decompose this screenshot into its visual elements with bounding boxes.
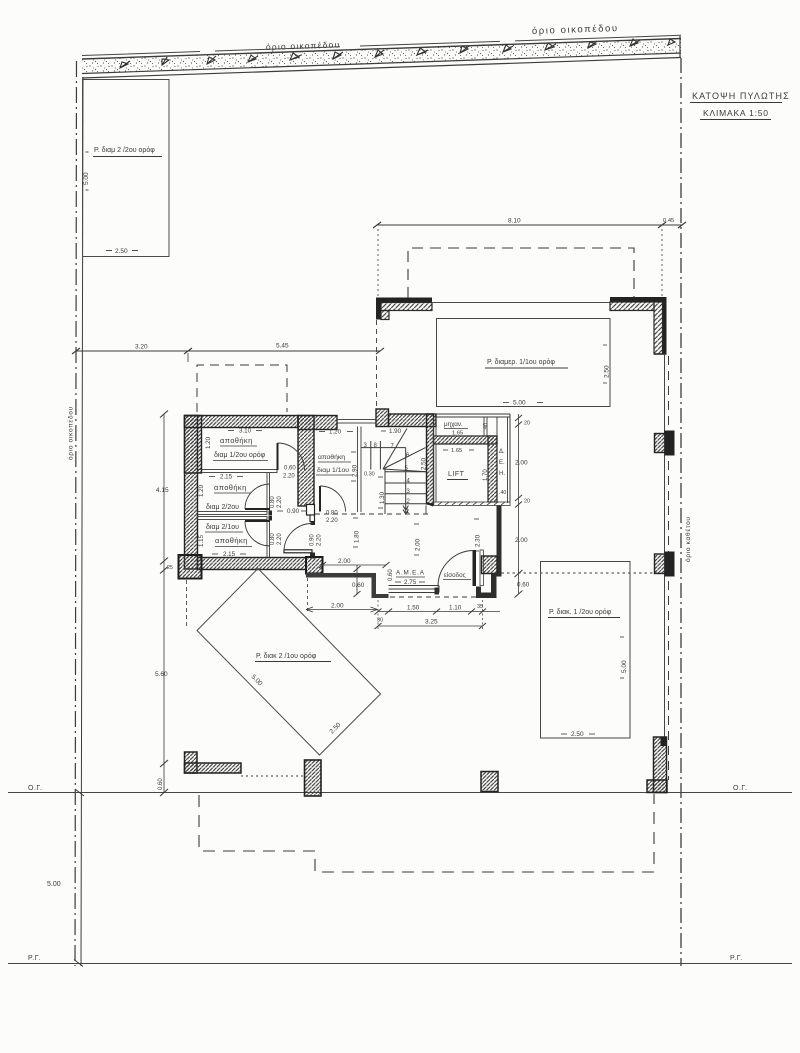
svg-text:αποθήκη: αποθήκη bbox=[318, 454, 345, 461]
svg-text:.40: .40 bbox=[499, 490, 506, 496]
svg-text:5.45: 5.45 bbox=[276, 343, 289, 350]
svg-text:0.60: 0.60 bbox=[158, 778, 164, 790]
svg-text:όριο οικοπέδου: όριο οικοπέδου bbox=[67, 406, 75, 460]
svg-text:0.60: 0.60 bbox=[388, 569, 394, 581]
svg-text:ΚΑΤΟΨΗ ΠΥΛΩΤΗΣ: ΚΑΤΟΨΗ ΠΥΛΩΤΗΣ bbox=[692, 91, 790, 101]
svg-text:20: 20 bbox=[524, 499, 530, 505]
svg-text:Ρ. διαμ 2 /2ου ορόφ: Ρ. διαμ 2 /2ου ορόφ bbox=[94, 146, 155, 154]
svg-text:1.10: 1.10 bbox=[449, 605, 462, 612]
svg-text:Α.Μ.Ε.Α: Α.Μ.Ε.Α bbox=[396, 570, 425, 577]
svg-text:2.00: 2.00 bbox=[415, 538, 422, 551]
svg-text:5.00: 5.00 bbox=[621, 660, 628, 673]
svg-text:διαμ 1/2ου ορόφ: διαμ 1/2ου ορόφ bbox=[214, 451, 266, 459]
svg-text:2.00: 2.00 bbox=[338, 558, 351, 565]
svg-text:0.90: 0.90 bbox=[287, 508, 300, 515]
svg-text:είσοδος: είσοδος bbox=[444, 571, 466, 579]
svg-text:2.50: 2.50 bbox=[604, 365, 611, 378]
svg-text:2.20: 2.20 bbox=[317, 534, 323, 546]
svg-text:5.00: 5.00 bbox=[513, 400, 526, 407]
svg-text:2.00: 2.00 bbox=[515, 460, 528, 467]
svg-text:5.00: 5.00 bbox=[83, 172, 90, 185]
svg-text:8.10: 8.10 bbox=[508, 218, 521, 225]
svg-text:αποθήκη: αποθήκη bbox=[214, 483, 247, 492]
svg-text:Ο.Γ.: Ο.Γ. bbox=[28, 785, 42, 792]
svg-text:Ο.Γ.: Ο.Γ. bbox=[733, 785, 747, 792]
svg-text:0.80: 0.80 bbox=[270, 496, 276, 508]
svg-text:μηχαν.: μηχαν. bbox=[444, 421, 463, 428]
svg-text:2.00: 2.00 bbox=[331, 603, 344, 610]
svg-text:Ρ.Γ.: Ρ.Γ. bbox=[28, 955, 41, 962]
svg-text:0.30: 0.30 bbox=[364, 472, 375, 478]
svg-text:2.75: 2.75 bbox=[404, 579, 417, 586]
svg-text:.40: .40 bbox=[483, 423, 489, 431]
svg-text:1.80: 1.80 bbox=[354, 530, 361, 543]
svg-text:Η.: Η. bbox=[499, 471, 505, 477]
svg-text:1.50: 1.50 bbox=[407, 605, 420, 612]
svg-text:0.60: 0.60 bbox=[352, 582, 365, 589]
svg-text:2.50: 2.50 bbox=[571, 731, 584, 738]
svg-text:Ε.: Ε. bbox=[499, 460, 505, 466]
svg-text:2.30: 2.30 bbox=[475, 534, 482, 547]
svg-text:διαμ 2/1ου: διαμ 2/1ου bbox=[206, 524, 239, 531]
svg-text:2.50: 2.50 bbox=[115, 248, 128, 255]
svg-text:ΚΛΙΜΑΚΑ 1:50: ΚΛΙΜΑΚΑ 1:50 bbox=[703, 108, 769, 118]
svg-text:2.20: 2.20 bbox=[277, 496, 283, 508]
svg-text:0.80: 0.80 bbox=[270, 533, 276, 545]
svg-text:25: 25 bbox=[167, 565, 173, 571]
svg-text:2.15: 2.15 bbox=[223, 551, 236, 558]
svg-text:3.10: 3.10 bbox=[239, 428, 252, 435]
svg-text:2.15: 2.15 bbox=[220, 474, 233, 481]
svg-text:1.90: 1.90 bbox=[389, 428, 402, 435]
svg-text:1.15: 1.15 bbox=[198, 534, 205, 547]
svg-text:1.65: 1.65 bbox=[451, 448, 462, 454]
svg-text:όριο καθέτου: όριο καθέτου bbox=[684, 516, 692, 562]
svg-text:20: 20 bbox=[524, 421, 530, 427]
svg-text:αποθήκη: αποθήκη bbox=[215, 536, 248, 545]
svg-text:αποθήκη: αποθήκη bbox=[220, 436, 253, 445]
svg-text:2.20: 2.20 bbox=[283, 474, 295, 480]
svg-text:2.50: 2.50 bbox=[421, 457, 428, 470]
svg-text:0.60: 0.60 bbox=[517, 582, 530, 589]
svg-text:1.20: 1.20 bbox=[198, 484, 205, 497]
svg-text:2.20: 2.20 bbox=[277, 533, 283, 545]
svg-text:2.20: 2.20 bbox=[326, 518, 338, 524]
svg-text:1.70: 1.70 bbox=[483, 469, 489, 481]
svg-text:1.30: 1.30 bbox=[379, 491, 386, 504]
svg-text:3.25: 3.25 bbox=[425, 619, 438, 626]
svg-text:Ρ. διαμερ. 1/1ου ορόφ: Ρ. διαμερ. 1/1ου ορόφ bbox=[487, 358, 555, 366]
svg-text:LIFT: LIFT bbox=[448, 471, 465, 478]
svg-text:0.45: 0.45 bbox=[663, 218, 674, 224]
svg-text:2.90: 2.90 bbox=[352, 464, 359, 477]
svg-text:Ρ. διακ. 1 /2ου ορόφ: Ρ. διακ. 1 /2ου ορόφ bbox=[549, 608, 612, 616]
svg-text:1.20: 1.20 bbox=[205, 436, 212, 449]
svg-text:5.60: 5.60 bbox=[155, 671, 168, 678]
svg-text:2.00: 2.00 bbox=[515, 537, 528, 544]
svg-text:διαμ 2/2ου: διαμ 2/2ου bbox=[206, 504, 239, 511]
svg-text:5.00: 5.00 bbox=[47, 881, 61, 888]
svg-text:1.20: 1.20 bbox=[329, 429, 342, 436]
svg-text:0.80: 0.80 bbox=[326, 511, 338, 517]
svg-text:0.90: 0.90 bbox=[310, 534, 316, 546]
svg-text:4.15: 4.15 bbox=[156, 487, 169, 494]
svg-text:Ρ.Γ.: Ρ.Γ. bbox=[730, 955, 743, 962]
svg-text:διαμ 1/1ου: διαμ 1/1ου bbox=[317, 467, 349, 474]
svg-text:Ρ. διακ 2 /1ου ορόφ: Ρ. διακ 2 /1ου ορόφ bbox=[256, 652, 317, 660]
svg-text:Δ.: Δ. bbox=[499, 449, 505, 455]
svg-text:3.20: 3.20 bbox=[135, 344, 148, 351]
svg-text:0.60: 0.60 bbox=[284, 466, 296, 472]
